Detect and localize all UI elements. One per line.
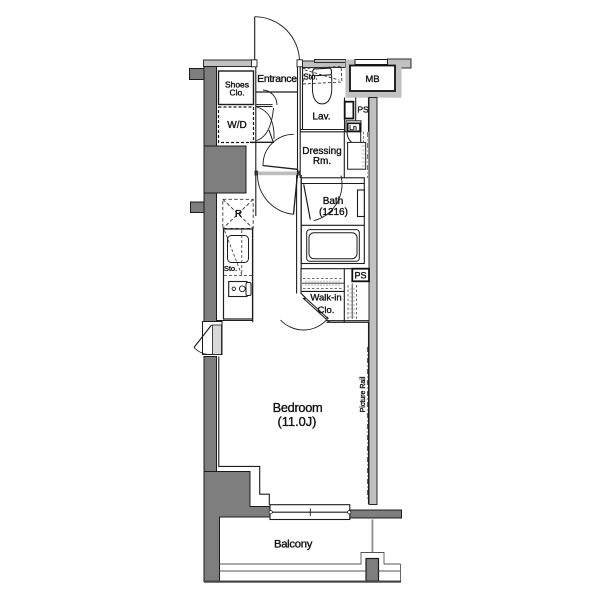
svg-text:MB: MB [365,74,379,85]
svg-text:Rm.: Rm. [313,156,331,167]
svg-text:Clo.: Clo. [318,305,335,316]
svg-text:Bedroom: Bedroom [273,400,323,415]
svg-text:Lav.: Lav. [312,112,330,123]
svg-text:PS: PS [357,105,369,115]
svg-text:Entrance: Entrance [257,73,297,85]
svg-text:Balcony: Balcony [274,538,313,550]
svg-text:Sto.: Sto. [303,73,317,82]
svg-text:R: R [235,209,242,220]
svg-text:Walk-in: Walk-in [310,293,341,304]
svg-text:PS: PS [354,271,366,281]
svg-text:Bath: Bath [323,196,344,207]
svg-text:Ln: Ln [349,125,357,132]
svg-text:(11.0J): (11.0J) [278,414,317,429]
svg-text:Sto.: Sto. [224,264,237,273]
svg-text:Clo.: Clo. [229,88,244,98]
svg-text:W/D: W/D [227,120,246,131]
svg-text:(1216): (1216) [319,207,348,218]
svg-text:Picture Rail: Picture Rail [360,376,367,412]
